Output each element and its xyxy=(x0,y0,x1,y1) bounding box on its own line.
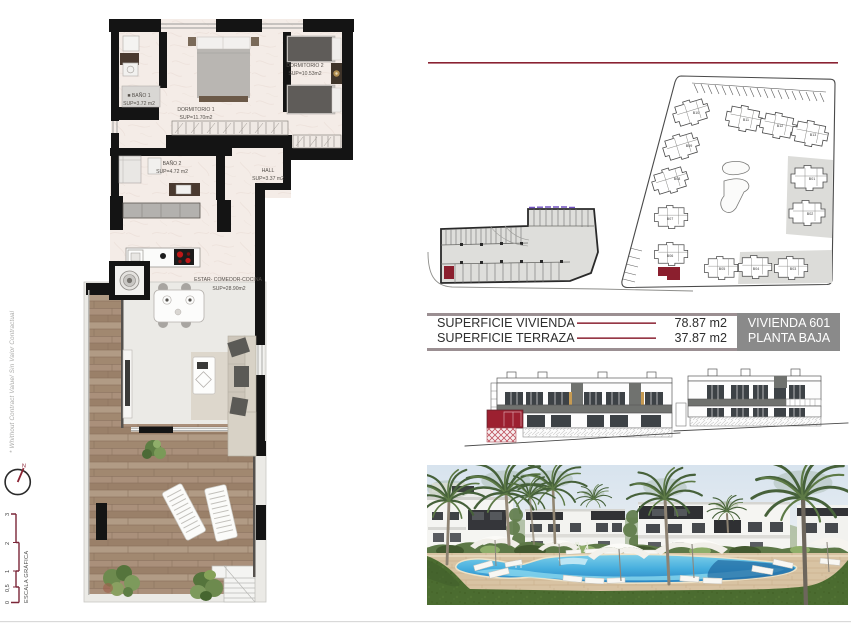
svg-text:DORMITORIO 1: DORMITORIO 1 xyxy=(177,107,214,113)
svg-text:B13: B13 xyxy=(810,133,816,137)
svg-text:B01: B01 xyxy=(809,177,815,181)
svg-text:B05: B05 xyxy=(719,267,725,271)
svg-text:ESCALA GRÁFICA: ESCALA GRÁFICA xyxy=(23,551,30,603)
svg-text:PLANTA BAJA: PLANTA BAJA xyxy=(748,331,831,345)
svg-text:* Whithout Contract Value/ Sin: * Whithout Contract Value/ Sin Valor Con… xyxy=(9,310,16,453)
svg-text:B04: B04 xyxy=(753,267,759,271)
svg-text:B02: B02 xyxy=(807,212,813,216)
svg-text:B10: B10 xyxy=(693,111,699,115)
svg-text:B08: B08 xyxy=(674,177,680,181)
svg-text:B11: B11 xyxy=(743,118,749,122)
svg-text:B07: B07 xyxy=(667,217,673,221)
svg-text:DORMITORIO 2: DORMITORIO 2 xyxy=(286,63,323,69)
svg-text:SUP=3.72 m2: SUP=3.72 m2 xyxy=(123,101,155,107)
svg-text:BAÑO 2: BAÑO 2 xyxy=(163,160,182,167)
svg-text:SUP=4.72 m2: SUP=4.72 m2 xyxy=(156,169,188,175)
svg-text:SUP=28.90m2: SUP=28.90m2 xyxy=(212,286,245,292)
svg-text:■ BAÑO 1: ■ BAÑO 1 xyxy=(127,92,150,99)
svg-text:1: 1 xyxy=(5,570,11,573)
svg-text:SUP=11.70m2: SUP=11.70m2 xyxy=(180,115,213,121)
svg-text:0: 0 xyxy=(5,601,11,604)
svg-text:SUPERFICIE VIVIENDA: SUPERFICIE VIVIENDA xyxy=(437,316,575,330)
svg-text:3: 3 xyxy=(5,513,11,516)
svg-text:B06: B06 xyxy=(667,254,673,258)
svg-text:2: 2 xyxy=(5,542,11,545)
svg-text:0,5: 0,5 xyxy=(5,584,11,592)
svg-text:HALL: HALL xyxy=(262,168,275,174)
svg-text:78.87 m2: 78.87 m2 xyxy=(674,316,727,330)
svg-text:37.87 m2: 37.87 m2 xyxy=(674,331,727,345)
svg-text:SUP=3.37 m2: SUP=3.37 m2 xyxy=(252,176,284,182)
svg-text:N: N xyxy=(22,464,26,470)
svg-text:ESTAR- COMEDOR-COCINA: ESTAR- COMEDOR-COCINA xyxy=(194,277,262,283)
svg-text:SUP=10.53m2: SUP=10.53m2 xyxy=(288,71,321,77)
svg-text:VIVIENDA 601: VIVIENDA 601 xyxy=(748,316,831,330)
svg-text:SUPERFICIE TERRAZA: SUPERFICIE TERRAZA xyxy=(437,331,575,345)
svg-text:B12: B12 xyxy=(777,124,783,128)
svg-text:B09: B09 xyxy=(686,144,692,148)
svg-text:B03: B03 xyxy=(790,267,796,271)
